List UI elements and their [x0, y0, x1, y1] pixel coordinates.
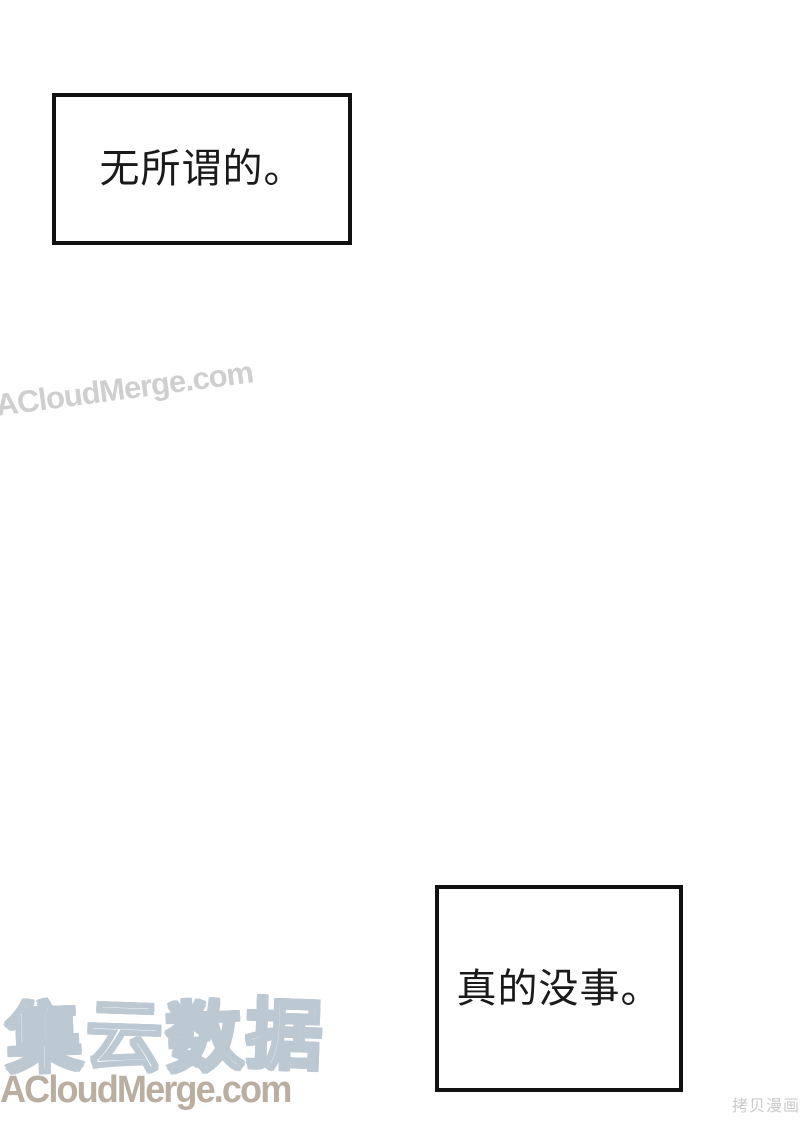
comic-page: 无所谓的。 ACloudMerge.com 真的没事。 集云数据 ACloudM…	[0, 0, 800, 1121]
dialogue-text-top: 无所谓的。	[100, 147, 305, 191]
dialogue-box-bottom: 真的没事。	[435, 885, 683, 1092]
watermark-site: ACloudMerge.com	[0, 1068, 290, 1112]
dialogue-box-top: 无所谓的。	[52, 93, 352, 245]
dialogue-text-bottom: 真的没事。	[457, 967, 662, 1011]
logo-char: 云	[85, 999, 168, 1078]
logo-char: 据	[245, 998, 328, 1077]
watermark-corner: 拷贝漫画	[732, 1092, 800, 1116]
watermark-diagonal: ACloudMerge.com	[0, 354, 255, 423]
